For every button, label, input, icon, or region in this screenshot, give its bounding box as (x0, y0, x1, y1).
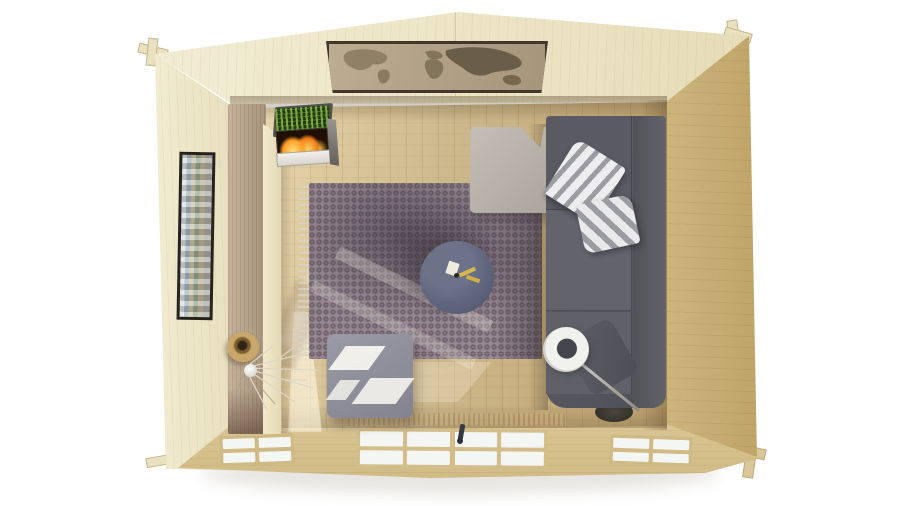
door-pane (454, 451, 497, 466)
window-pane (259, 437, 291, 448)
door-center-stile (450, 429, 455, 468)
dry-branches (215, 340, 325, 415)
door-handle-knob (457, 438, 463, 444)
electric-fireplace (273, 103, 339, 169)
ottoman-light-patch (352, 378, 415, 404)
door-pane (407, 450, 450, 465)
square-ottoman (327, 334, 413, 418)
white-ornament (244, 364, 257, 377)
fireplace-front-panel (276, 149, 332, 167)
window-pane (259, 451, 291, 462)
lamp-shade (543, 327, 589, 372)
world-map-continents (329, 44, 545, 90)
front-window-right (610, 435, 693, 467)
cabin-top-view-render (0, 0, 900, 506)
gallery-picture (177, 152, 216, 321)
door-pane (407, 432, 450, 447)
window-pane (223, 438, 255, 449)
window-pane (613, 438, 649, 449)
window-pane (223, 452, 255, 463)
window-pane (613, 451, 649, 462)
door-pane (501, 432, 544, 447)
world-map-art-frame (326, 41, 548, 93)
front-window-left (219, 434, 294, 467)
door-pane (360, 431, 403, 446)
sofa-backrest (633, 116, 666, 408)
table-cup (454, 273, 459, 278)
door-pane (360, 450, 403, 465)
world-map-art (329, 44, 545, 90)
door-pane (501, 451, 544, 466)
window-pane (653, 439, 689, 450)
ottoman-light-patch (328, 346, 385, 370)
window-pane (653, 453, 689, 464)
